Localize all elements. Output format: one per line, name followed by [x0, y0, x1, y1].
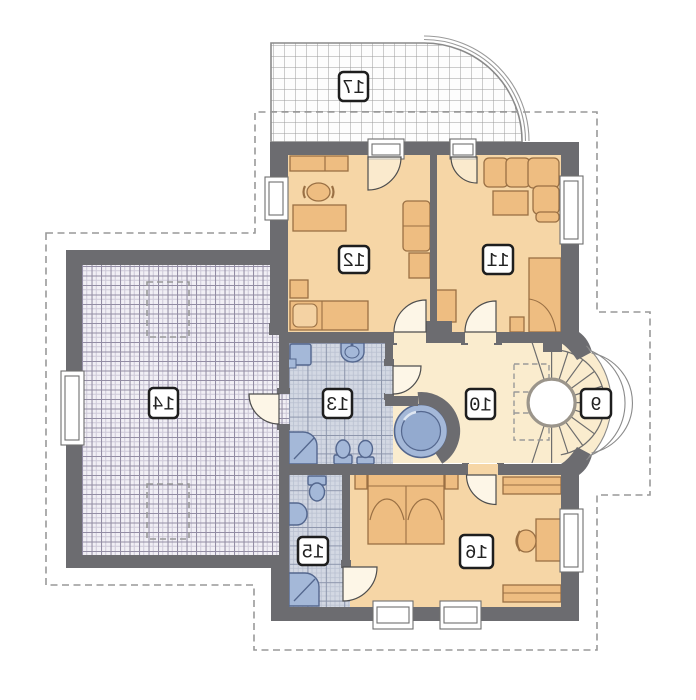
svg-text:11: 11: [487, 250, 510, 272]
svg-text:15: 15: [302, 542, 325, 564]
svg-text:12: 12: [343, 250, 366, 272]
svg-text:13: 13: [326, 394, 349, 416]
svg-text:10: 10: [469, 395, 492, 417]
svg-text:17: 17: [342, 77, 365, 99]
svg-text:9: 9: [590, 394, 601, 416]
svg-text:14: 14: [152, 394, 175, 416]
svg-text:16: 16: [465, 542, 488, 564]
